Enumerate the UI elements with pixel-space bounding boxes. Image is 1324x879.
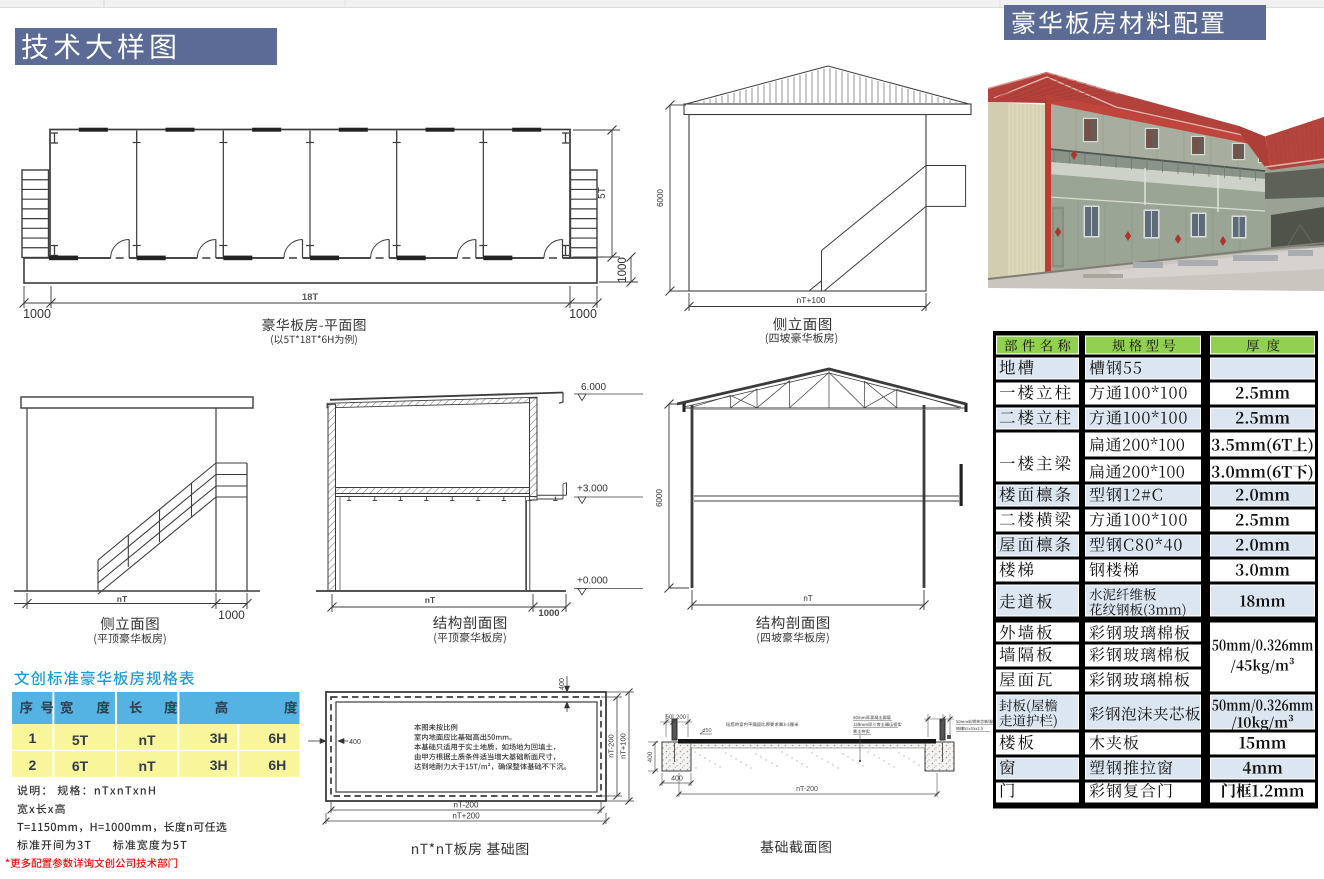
- svg-text:nT+100: nT+100: [619, 733, 628, 759]
- svg-text:1000: 1000: [569, 307, 597, 321]
- svg-text:+0.000: +0.000: [577, 576, 608, 587]
- svg-text:6H: 6H: [268, 730, 286, 746]
- svg-text:nT: nT: [138, 732, 156, 748]
- svg-text:1000: 1000: [218, 608, 245, 622]
- svg-text:400: 400: [671, 776, 683, 783]
- svg-text:nT: nT: [425, 595, 436, 605]
- svg-text:1000: 1000: [617, 257, 629, 283]
- svg-text:nT: nT: [117, 594, 128, 604]
- svg-text:200: 200: [676, 715, 687, 721]
- svg-text:nT+100: nT+100: [796, 295, 825, 305]
- svg-text:6000: 6000: [656, 189, 665, 207]
- svg-text:nT-200: nT-200: [796, 786, 818, 793]
- svg-text:6T: 6T: [72, 758, 89, 774]
- svg-text:nT-200: nT-200: [454, 801, 479, 810]
- svg-text:+3.000: +3.000: [577, 484, 608, 495]
- svg-text:400: 400: [349, 739, 361, 746]
- svg-text:400: 400: [559, 678, 566, 690]
- svg-text:nT-200: nT-200: [607, 734, 616, 757]
- svg-text:6.000: 6.000: [581, 382, 606, 393]
- svg-text:18T: 18T: [302, 292, 319, 303]
- svg-text:3H: 3H: [210, 757, 228, 773]
- svg-text:nT: nT: [803, 594, 812, 603]
- svg-text:3H: 3H: [210, 730, 228, 746]
- svg-text:2: 2: [29, 757, 37, 773]
- svg-text:nT+200: nT+200: [452, 812, 480, 821]
- svg-text:400: 400: [647, 751, 654, 762]
- svg-text:1000: 1000: [538, 608, 559, 619]
- svg-text:50: 50: [666, 715, 673, 721]
- svg-text:6000: 6000: [655, 489, 664, 507]
- svg-text:6H: 6H: [268, 757, 286, 773]
- svg-text:5T: 5T: [72, 732, 89, 748]
- svg-text:1000: 1000: [23, 307, 51, 321]
- svg-text:nT: nT: [138, 758, 156, 774]
- svg-text:d50: d50: [702, 728, 711, 734]
- svg-text:1: 1: [29, 730, 37, 746]
- svg-text:5T: 5T: [597, 187, 608, 199]
